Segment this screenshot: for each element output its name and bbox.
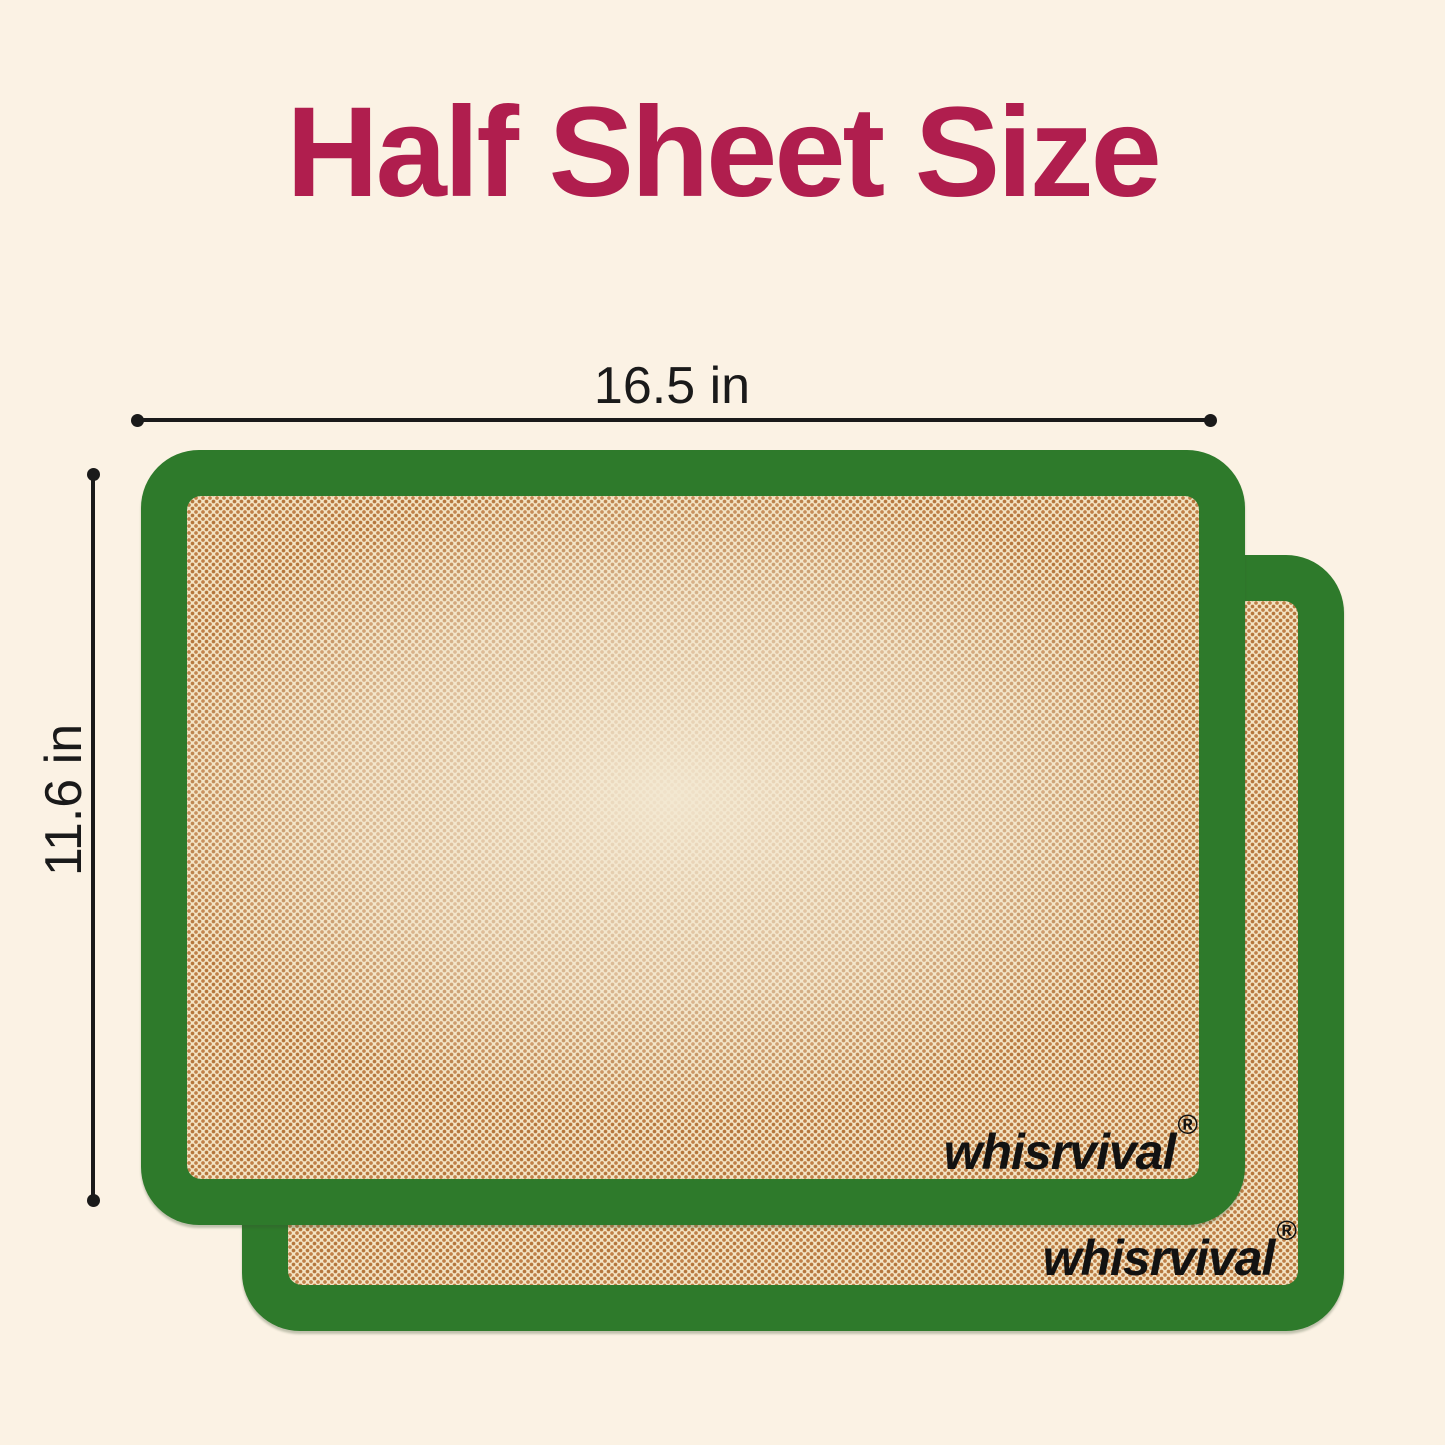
brand-logo-front: whisrvival® [944,1123,1198,1181]
mat-mesh-surface-front [187,496,1199,1179]
brand-logo-back: whisrvival® [1043,1229,1297,1287]
baking-mat-front: whisrvival® [141,450,1245,1225]
registered-trademark-icon: ® [1177,1109,1198,1141]
product-image-canvas: Half Sheet Size 16.5 in 11.6 in whisrviv… [0,0,1445,1445]
brand-logo-text: whisrvival [1043,1230,1275,1286]
width-dimension-label: 16.5 in [472,356,872,416]
height-dimension-label: 11.6 in [34,724,94,876]
width-dimension-line [137,418,1211,422]
brand-logo-text: whisrvival [944,1124,1176,1180]
product-title: Half Sheet Size [0,86,1445,220]
registered-trademark-icon: ® [1276,1215,1297,1247]
height-dimension-line [91,474,95,1201]
